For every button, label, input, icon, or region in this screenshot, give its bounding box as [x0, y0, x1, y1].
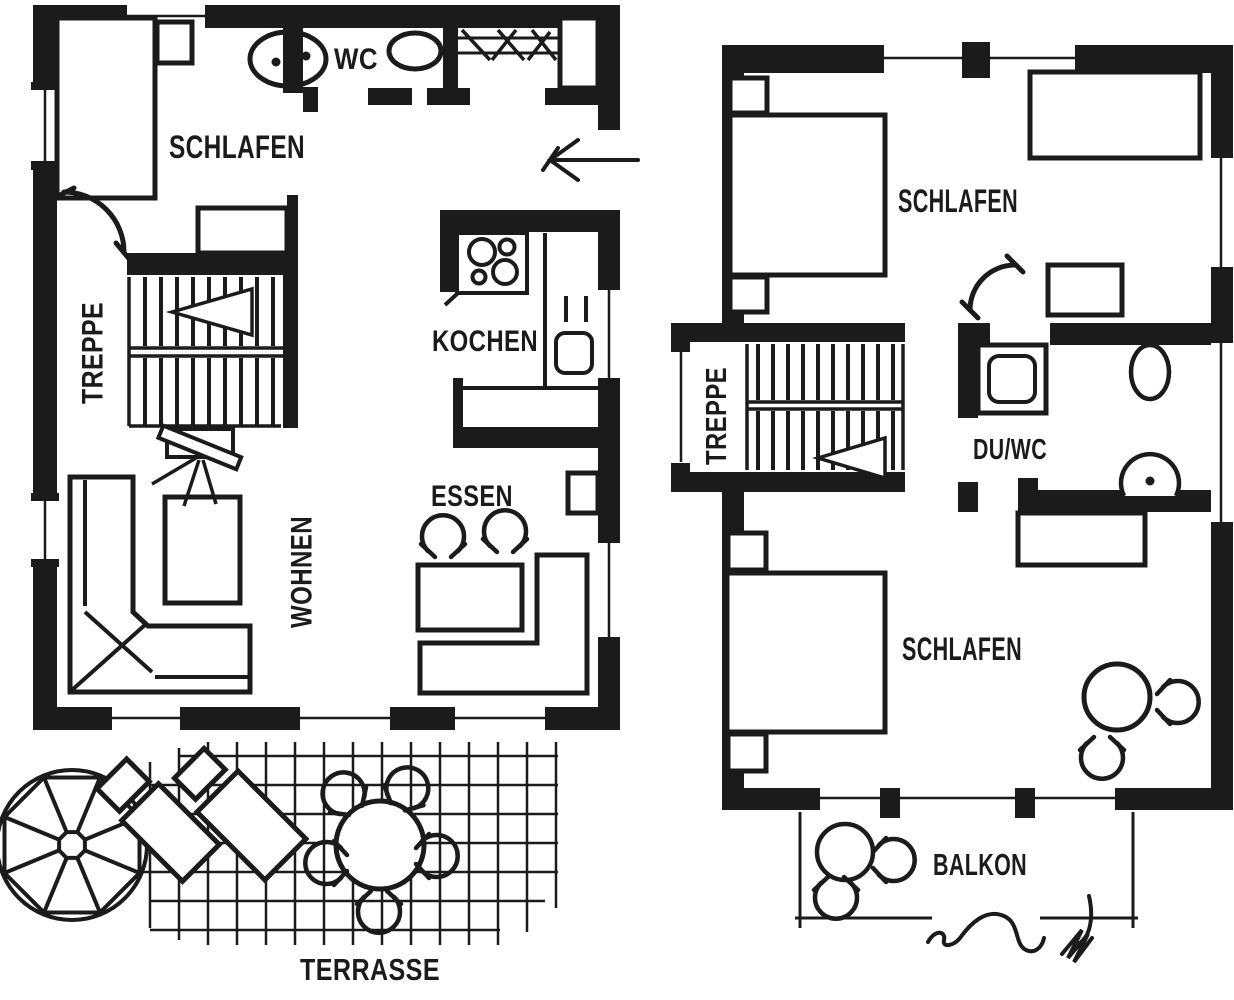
room-label-schlafen: SCHLAFEN: [169, 129, 305, 165]
sideboard: [1018, 513, 1145, 565]
floor-plan-canvas: SCHLAFEN WC TREPPE KOCHEN ESSEN WOHNEN T…: [0, 0, 1234, 1000]
balcony-table: [817, 824, 873, 880]
nightstand: [157, 22, 192, 63]
room-label-treppe: TREPPE: [77, 302, 110, 404]
bed: [57, 18, 155, 198]
toilet-icon: [389, 33, 441, 69]
side-table: [1084, 664, 1150, 730]
floor-plan-page: SCHLAFEN WC TREPPE KOCHEN ESSEN WOHNEN T…: [0, 0, 1234, 1000]
room-label-terrasse: TERRASSE: [300, 952, 440, 987]
nightstand: [728, 734, 766, 771]
room-label-treppe-upper: TREPPE: [701, 367, 733, 465]
nightstand: [728, 533, 766, 570]
wardrobe: [560, 18, 598, 88]
room-label-wohnen: WOHNEN: [286, 516, 319, 628]
dresser: [1048, 265, 1122, 315]
room-label-balkon: BALKON: [933, 847, 1027, 882]
room-label-schlafen-2: SCHLAFEN: [902, 631, 1022, 667]
sink-icon: [556, 333, 592, 373]
double-bed: [727, 573, 885, 732]
room-label-wc: WC: [334, 43, 378, 76]
double-bed: [730, 115, 885, 275]
toilet-icon: [1131, 345, 1169, 399]
room-label-du-wc: DU/WC: [973, 434, 1047, 466]
room-label-schlafen-1: SCHLAFEN: [898, 183, 1018, 219]
washbasin-icon: [1121, 454, 1179, 496]
dining-table: [418, 565, 522, 630]
wall-niche: [568, 473, 598, 513]
coffee-table: [165, 497, 240, 603]
room-label-kochen: KOCHEN: [432, 325, 538, 358]
wardrobe: [1030, 72, 1200, 158]
nightstand: [730, 277, 767, 312]
nightstand: [730, 78, 767, 113]
dresser: [198, 208, 287, 253]
room-label-essen: ESSEN: [431, 480, 513, 513]
